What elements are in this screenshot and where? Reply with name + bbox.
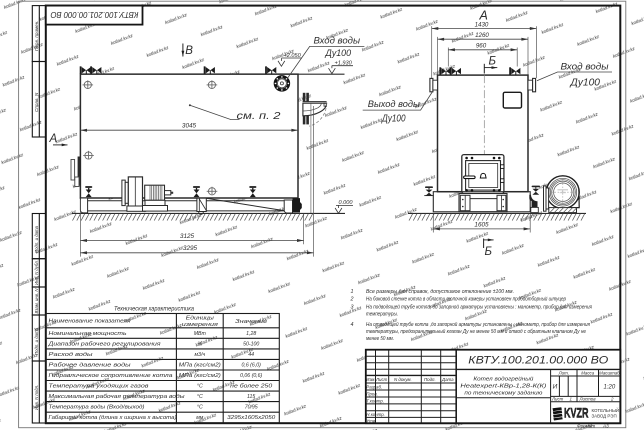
svg-text:Техническая характеристика: Техническая характеристика xyxy=(114,307,195,313)
svg-text:N докум.: N докум. xyxy=(394,377,412,382)
svg-text:КОТЕЛЬНЫЙ: КОТЕЛЬНЫЙ xyxy=(592,408,620,413)
svg-text:°С: °С xyxy=(197,405,203,411)
svg-text:Наименование показателя: Наименование показателя xyxy=(49,319,131,325)
svg-text:На подводящей трубе котла, д: На подводящей трубе котла, до запорной а… xyxy=(366,304,592,311)
svg-text:менее 50 мм.: менее 50 мм. xyxy=(366,336,394,342)
svg-text:+1.930: +1.930 xyxy=(335,61,353,67)
svg-text:Б: Б xyxy=(489,56,497,68)
svg-text:KVZR: KVZR xyxy=(564,406,589,421)
svg-text:Листов: Листов xyxy=(579,397,597,402)
svg-text:Инв. N подл.: Инв. N подл. xyxy=(34,385,39,410)
svg-text:Дата: Дата xyxy=(441,377,454,382)
svg-text:%: % xyxy=(197,341,202,347)
svg-text:не более 250: не более 250 xyxy=(230,384,272,390)
svg-text:МПа (кгс/см2): МПа (кгс/см2) xyxy=(179,362,221,368)
svg-text:МВт: МВт xyxy=(194,331,207,337)
svg-text:4: 4 xyxy=(351,322,354,328)
svg-text:1605: 1605 xyxy=(474,222,489,229)
svg-text:Ду100: Ду100 xyxy=(381,113,406,124)
svg-text:Утв.: Утв. xyxy=(366,418,376,423)
svg-text:Максимальная рабочая температу: Максимальная рабочая температура воды xyxy=(49,394,185,400)
svg-text:Лист: Лист xyxy=(551,397,564,402)
svg-text:Вход воды: Вход воды xyxy=(561,62,609,72)
svg-text:Диапазон рабочего регулировани: Диапазон рабочего регулирования xyxy=(47,341,161,347)
svg-text:2: 2 xyxy=(610,397,614,402)
svg-text:Габариты котла (длина х ширина: Габариты котла (длина х ширина х высота) xyxy=(49,415,177,421)
svg-text:Ду100: Ду100 xyxy=(569,78,600,89)
svg-text:На боковой стенке котла в обла: На боковой стенке котла в области топочн… xyxy=(366,296,566,303)
svg-text:Т.контр.: Т.контр. xyxy=(366,399,384,404)
svg-text:Разраб.: Разраб. xyxy=(366,385,382,390)
svg-text:температуры, предохранительный: температуры, предохранительный клапан Ду… xyxy=(366,328,586,335)
svg-text:1,28: 1,28 xyxy=(246,331,256,337)
svg-text:температуры.: температуры. xyxy=(366,312,398,318)
svg-text:На отводящей трубе котла ,до з: На отводящей трубе котла ,до запорной ар… xyxy=(366,321,590,328)
svg-text:А3: А3 xyxy=(602,423,609,428)
svg-text:50-100: 50-100 xyxy=(243,341,259,347)
svg-text:Подп.: Подп. xyxy=(424,377,436,382)
svg-text:Перв. примен.: Перв. примен. xyxy=(34,20,39,51)
svg-text:Масса: Масса xyxy=(581,370,595,375)
svg-text:70/95: 70/95 xyxy=(245,405,258,411)
svg-text:Рабочее давление воды: Рабочее давление воды xyxy=(49,362,131,368)
svg-text:Взам. инв. N: Взам. инв. N xyxy=(34,288,39,314)
svg-text:1430: 1430 xyxy=(475,21,489,28)
svg-text:°С: °С xyxy=(197,394,203,400)
svg-text:Лист: Лист xyxy=(375,377,388,382)
svg-text:КВТУ.100.201.00.000 ВО: КВТУ.100.201.00.000 ВО xyxy=(50,10,139,19)
svg-text:3295х1605х2050: 3295х1605х2050 xyxy=(227,415,275,421)
svg-text:А: А xyxy=(49,133,58,145)
svg-text:см. п. 2: см. п. 2 xyxy=(237,110,281,122)
svg-text:44: 44 xyxy=(248,352,254,358)
svg-text:Справ. N: Справ. N xyxy=(34,92,39,112)
svg-text:2: 2 xyxy=(350,297,354,303)
svg-text:Выход воды: Выход воды xyxy=(368,99,420,109)
svg-text:КВТУ.100.201.00.000 ВО: КВТУ.100.201.00.000 ВО xyxy=(468,355,608,367)
svg-text:Котел водогрейный: Котел водогрейный xyxy=(473,376,533,383)
svg-text:Формат: Формат xyxy=(577,423,595,428)
svg-text:Температура воды (Вход/выход): Температура воды (Вход/выход) xyxy=(49,405,145,411)
svg-text:Единицы: Единицы xyxy=(186,316,214,322)
svg-text:Вход воды: Вход воды xyxy=(314,36,361,46)
svg-text:ЗАВОД РЭП: ЗАВОД РЭП xyxy=(592,413,617,418)
svg-text:1:20: 1:20 xyxy=(604,385,616,391)
svg-text:Изм.: Изм. xyxy=(366,377,375,382)
svg-text:3295: 3295 xyxy=(183,245,198,252)
svg-text:0,6 (6,0): 0,6 (6,0) xyxy=(242,362,262,368)
svg-text:1: 1 xyxy=(351,289,354,295)
svg-text:Гидравлическое сопротивление к: Гидравлическое сопротивление котла xyxy=(49,373,173,379)
svg-text:Н.контр.: Н.контр. xyxy=(366,412,385,417)
svg-text:по техническому заданию: по техническому заданию xyxy=(464,391,542,397)
svg-text:Ду100: Ду100 xyxy=(325,48,352,58)
svg-text:В: В xyxy=(185,45,193,57)
svg-text:960: 960 xyxy=(476,43,487,50)
svg-text:Расход воды: Расход воды xyxy=(49,352,93,358)
svg-text:м3/ч: м3/ч xyxy=(195,352,206,358)
svg-text:Номинальная мощность: Номинальная мощность xyxy=(49,331,127,337)
svg-text:3: 3 xyxy=(351,305,354,311)
svg-text:Подп. и дата: Подп. и дата xyxy=(34,327,39,355)
svg-text:МПа (кгс/см2): МПа (кгс/см2) xyxy=(179,373,221,379)
svg-text:115: 115 xyxy=(247,394,255,400)
svg-text:Значение: Значение xyxy=(235,319,267,325)
svg-text:мм: мм xyxy=(196,415,204,421)
svg-text:3125: 3125 xyxy=(180,233,195,240)
svg-text:1260: 1260 xyxy=(475,32,489,39)
svg-text:И: И xyxy=(553,384,558,391)
svg-text:0.000: 0.000 xyxy=(339,200,354,206)
svg-text:измерения: измерения xyxy=(182,322,218,328)
svg-text:Б: Б xyxy=(485,246,493,258)
svg-text:Масштаб: Масштаб xyxy=(599,370,620,375)
svg-text:+2.050: +2.050 xyxy=(284,53,302,59)
svg-text:0,06 (0,6): 0,06 (0,6) xyxy=(240,373,262,379)
svg-text:Подп. и дата: Подп. и дата xyxy=(34,225,39,253)
svg-text:Температура уходящих газов: Температура уходящих газов xyxy=(49,384,149,390)
svg-text:°С: °С xyxy=(197,384,203,390)
svg-text:Пров.: Пров. xyxy=(366,392,378,397)
svg-text:Все размеры для справок, допус: Все размеры для справок, допустимое откл… xyxy=(366,289,514,295)
svg-text:Heatexpert-КВр-1,28-К(К): Heatexpert-КВр-1,28-К(К) xyxy=(460,384,546,390)
svg-text:Лит.: Лит. xyxy=(558,370,569,375)
svg-text:3045: 3045 xyxy=(182,123,197,130)
svg-text:Инв. N дубл.: Инв. N дубл. xyxy=(34,260,39,285)
